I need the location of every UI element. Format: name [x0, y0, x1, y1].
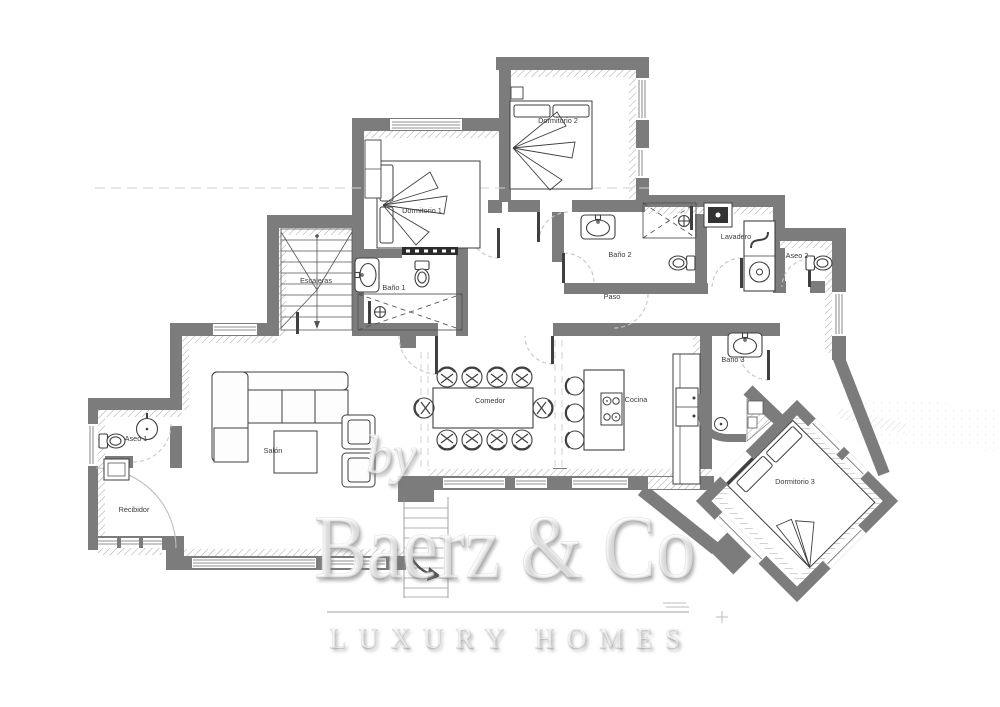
bed-dormitorio-1 — [365, 140, 480, 248]
aseo-1-fixtures — [99, 413, 158, 480]
label-bano-3: Baño 3 — [721, 355, 744, 364]
kitchen-counter — [673, 354, 700, 484]
label-lavadero: Lavadero — [721, 232, 751, 241]
floor-plan: Dormitorio 1 Dormitorio 2 Dormitorio 3 B… — [0, 0, 1000, 707]
label-dormitorio-1: Dormitorio 1 — [402, 206, 442, 215]
survey-marks — [663, 603, 728, 623]
laundry-fixtures — [704, 203, 775, 291]
label-salon: Salón — [264, 446, 283, 455]
label-bano-2: Baño 2 — [608, 250, 631, 259]
label-paso: Paso — [604, 292, 621, 301]
label-aseo-1: Aseo 1 — [125, 434, 148, 443]
label-bano-1: Baño 1 — [382, 283, 405, 292]
bed-dormitorio-2 — [510, 87, 592, 190]
label-cocina: Cocina — [625, 395, 649, 404]
label-dormitorio-3: Dormitorio 3 — [775, 477, 815, 486]
label-recibidor: Recibidor — [119, 505, 150, 514]
aseo-2-fixtures — [806, 256, 832, 270]
sliding-door-track — [402, 247, 458, 255]
label-escaleras: Escaleras — [300, 276, 332, 285]
kitchen-island — [566, 370, 624, 450]
dining-set — [414, 367, 553, 450]
armchairs — [342, 415, 375, 487]
label-comedor: Comedor — [475, 396, 506, 405]
exterior-steps — [404, 497, 448, 598]
floor-plan-page: Dormitorio 1 Dormitorio 2 Dormitorio 3 B… — [0, 0, 1000, 707]
label-dormitorio-2: Dormitorio 2 — [538, 116, 578, 125]
bathroom-3-fixtures — [702, 333, 771, 441]
label-aseo-2: Aseo 2 — [786, 251, 809, 260]
bathroom-1-fixtures — [355, 258, 462, 330]
